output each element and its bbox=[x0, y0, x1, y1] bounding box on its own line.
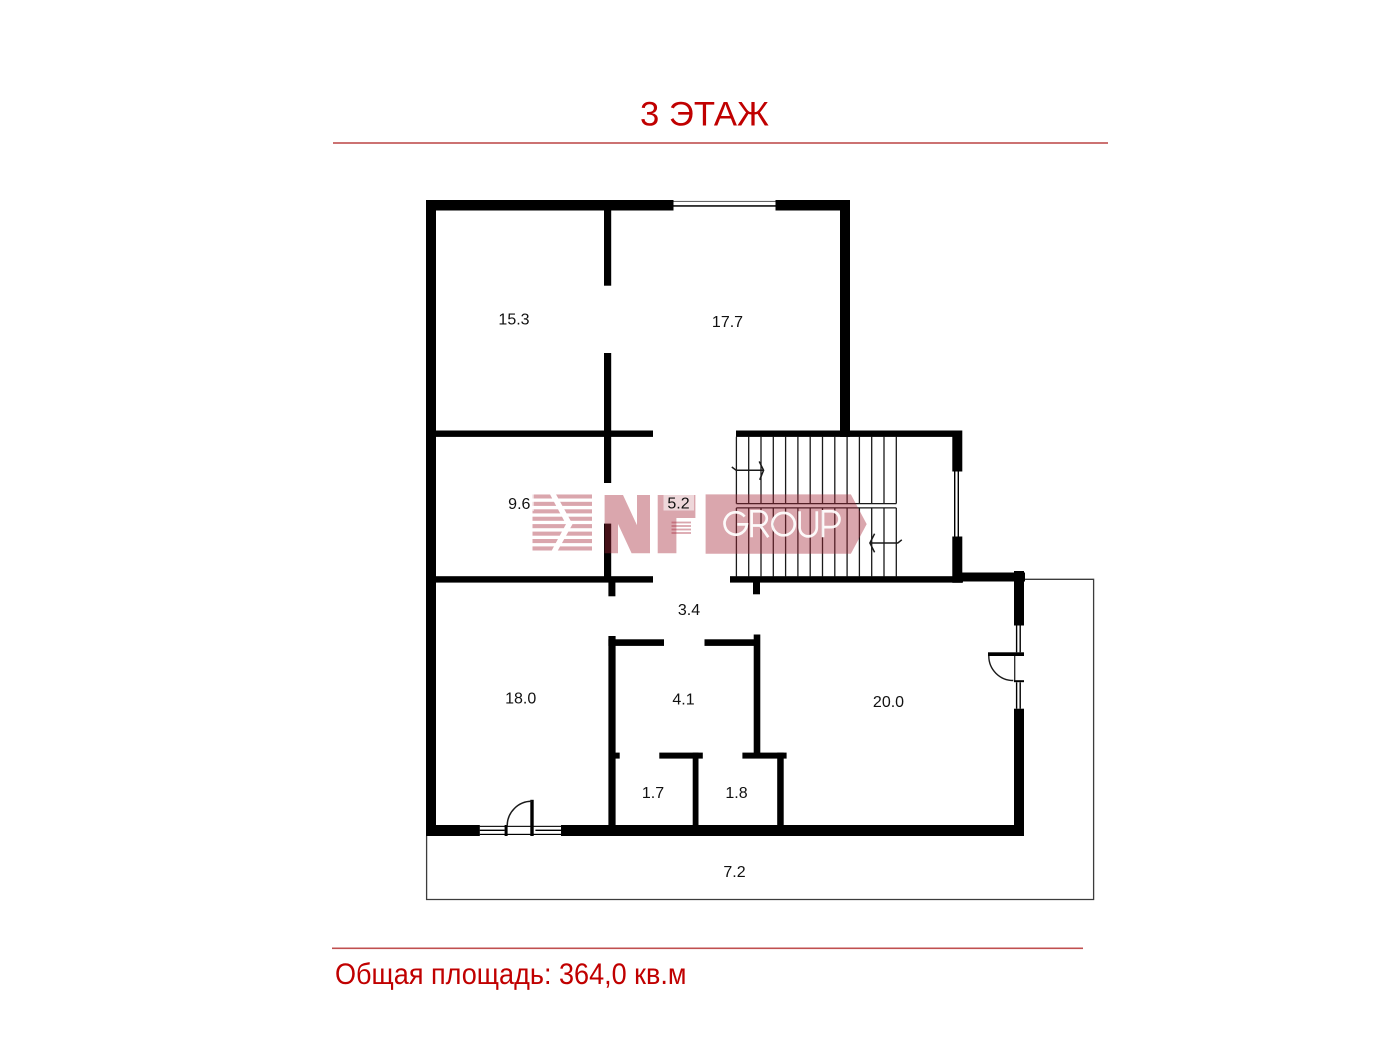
svg-text:4.1: 4.1 bbox=[672, 692, 694, 709]
svg-text:20.0: 20.0 bbox=[873, 694, 904, 711]
svg-text:18.0: 18.0 bbox=[505, 690, 536, 707]
svg-text:1.8: 1.8 bbox=[725, 785, 747, 802]
svg-text:3.4: 3.4 bbox=[678, 602, 700, 619]
svg-text:5.2: 5.2 bbox=[667, 496, 689, 513]
svg-text:17.7: 17.7 bbox=[712, 314, 743, 331]
svg-text:7.2: 7.2 bbox=[723, 864, 745, 881]
svg-text:1.7: 1.7 bbox=[642, 785, 664, 802]
svg-text:15.3: 15.3 bbox=[498, 312, 529, 329]
svg-text:9.6: 9.6 bbox=[508, 496, 530, 513]
svg-text:3 ЭТАЖ: 3 ЭТАЖ bbox=[640, 95, 769, 133]
svg-text:Общая площадь: 364,0 кв.м: Общая площадь: 364,0 кв.м bbox=[335, 958, 687, 991]
